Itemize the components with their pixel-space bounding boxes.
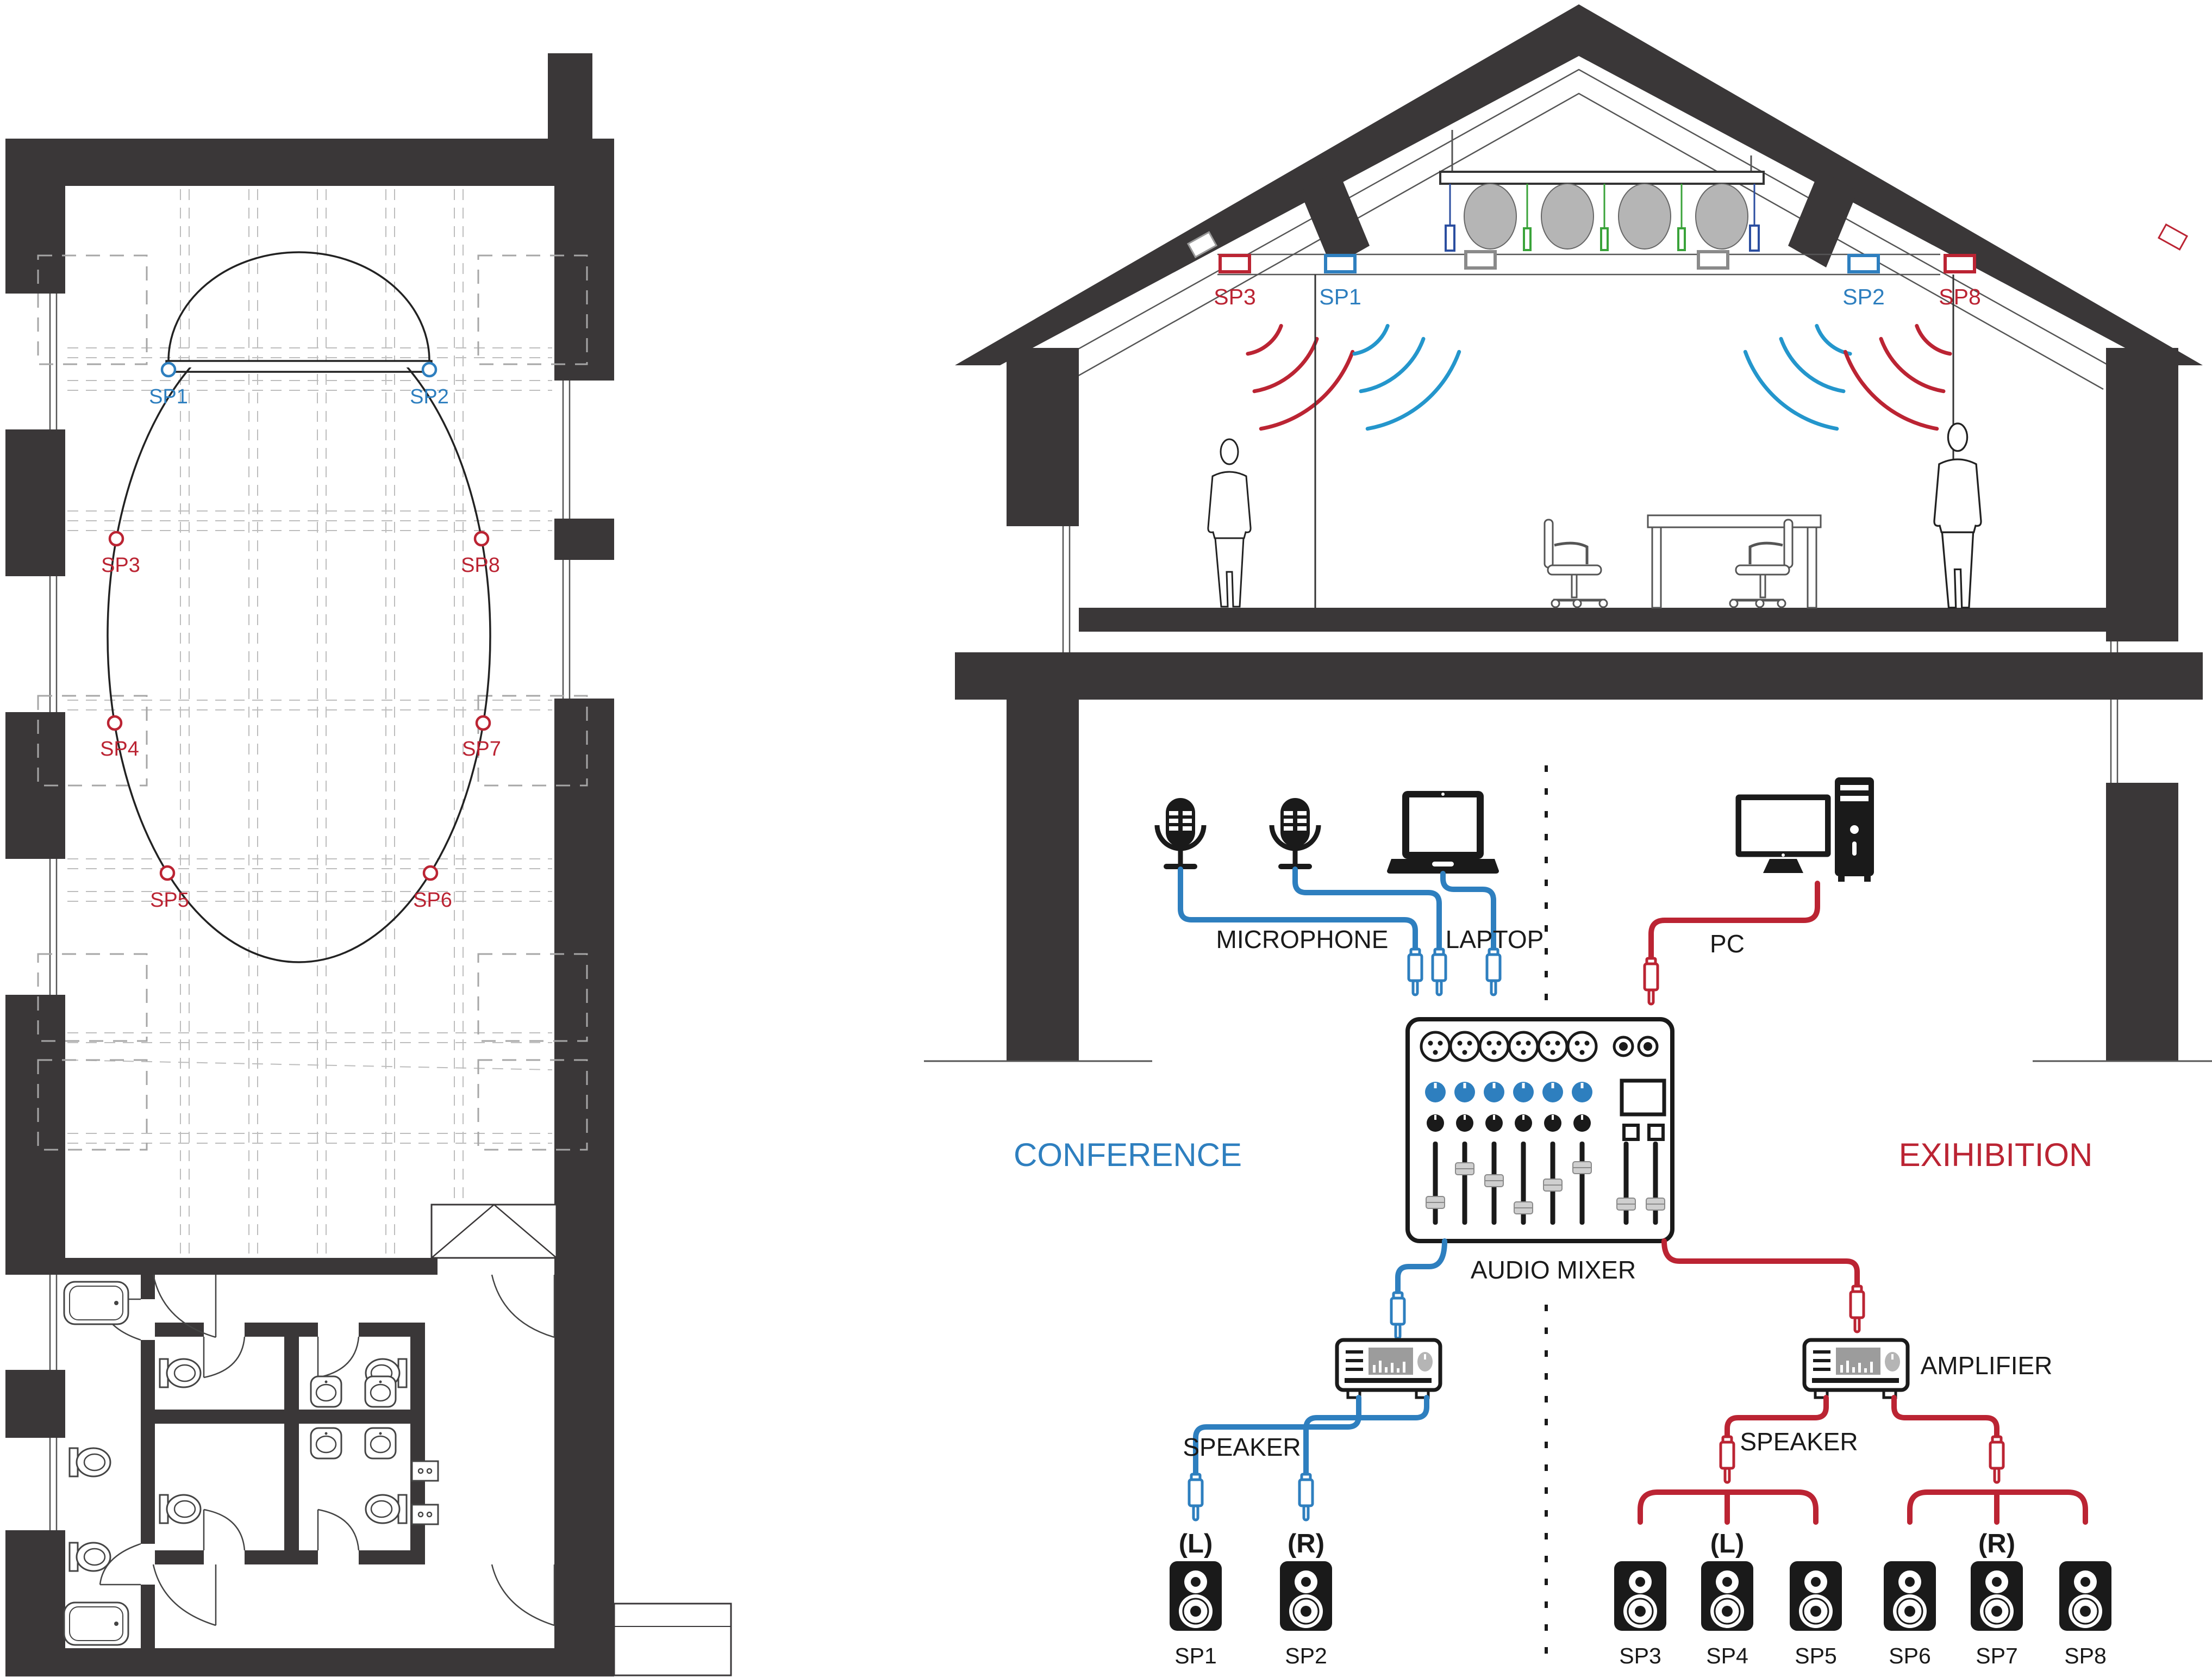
- fan-unit: [1464, 184, 1516, 249]
- fan-unit: [1541, 184, 1594, 249]
- speaker-sp6: [1884, 1561, 1936, 1631]
- cabinet-label-sp7: SP7: [1976, 1643, 2018, 1668]
- speaker-label-conference: SPEAKER: [1183, 1433, 1301, 1461]
- plan-label-sp1: SP1: [149, 385, 188, 408]
- jack-red: [1721, 1437, 1734, 1482]
- office-chair: [1730, 520, 1792, 607]
- window: [554, 560, 614, 699]
- speaker-sp1: [1170, 1561, 1222, 1631]
- window: [5, 1438, 65, 1530]
- fan-unit: [1619, 184, 1671, 249]
- section-wall-left: [1007, 348, 1079, 1061]
- sp6-marker: [424, 866, 437, 880]
- speaker-sp7: [1971, 1561, 2023, 1631]
- sink: [64, 1282, 128, 1324]
- speaker-cabinets: [1170, 1561, 2111, 1631]
- plan-label-sp2: SP2: [410, 385, 449, 408]
- ceiling-fixture: [1698, 252, 1728, 268]
- cross-section: SP3 SP1 SP2 SP8: [924, 4, 2212, 1061]
- av-system-diagram: SP1 SP2 SP3 SP8 SP4 SP7 SP5 SP6: [0, 0, 2212, 1677]
- plan-speaker-markers: [108, 363, 490, 880]
- stage-arch: [168, 252, 429, 361]
- jack-blue: [1299, 1474, 1313, 1520]
- sp7-marker: [477, 716, 490, 730]
- speaker-sp5: [1790, 1561, 1842, 1631]
- sp4-marker: [108, 716, 121, 730]
- microphone-icon: [1272, 798, 1319, 869]
- sp3-marker: [110, 532, 123, 545]
- window: [554, 381, 614, 519]
- jack-blue: [1189, 1474, 1202, 1520]
- section-window-left: [1007, 526, 1079, 668]
- channel-conf-r: (R): [1288, 1529, 1324, 1558]
- person-right: [1934, 423, 1981, 608]
- channel-exh-r: (R): [1978, 1529, 2015, 1558]
- hvac-rail: [1440, 172, 1764, 184]
- cabinet-label-sp8: SP8: [2064, 1643, 2107, 1668]
- floor-slab: [1079, 608, 2106, 632]
- section-sp1-speaker: [1326, 255, 1355, 272]
- slope-fixture-right: [2159, 225, 2187, 250]
- plan-label-sp3: SP3: [101, 554, 140, 577]
- office-chair: [1545, 520, 1607, 607]
- speaker-sp3: [1614, 1561, 1666, 1631]
- plan-label-sp5: SP5: [150, 889, 189, 912]
- jack-blue: [1391, 1293, 1404, 1338]
- section-sp2-speaker: [1849, 255, 1878, 272]
- amplifier-exhibition: [1804, 1340, 1908, 1398]
- sink-bowl: [365, 1428, 396, 1458]
- cabinet-label-sp3: SP3: [1619, 1643, 1661, 1668]
- vestibule: [432, 1205, 557, 1258]
- plan-label-sp4: SP4: [100, 738, 139, 760]
- jack-red: [1990, 1437, 2003, 1482]
- microphone-label: MICROPHONE: [1216, 925, 1389, 953]
- person-left: [1208, 439, 1251, 607]
- section-label-sp3: SP3: [1214, 284, 1256, 309]
- plan-speaker-labels: SP1 SP2 SP3 SP8 SP4 SP7 SP5 SP6: [100, 385, 501, 912]
- wall-right: [554, 139, 614, 1653]
- cabinet-label-sp2: SP2: [1285, 1643, 1327, 1668]
- diagram-canvas: SP1 SP2 SP3 SP8 SP4 SP7 SP5 SP6: [0, 0, 2212, 1677]
- plan-label-sp6: SP6: [413, 889, 452, 912]
- mixer-display: [1622, 1081, 1664, 1114]
- speaker-sp4: [1701, 1561, 1753, 1631]
- wiring-diagram: MICROPHONE LAPTOP PC CONFERENCE EXIHIBIT…: [1014, 765, 2111, 1668]
- jack-blue: [1409, 949, 1422, 995]
- sink-bowl: [365, 1376, 396, 1407]
- toilet: [70, 1448, 110, 1476]
- hand-dryer: [412, 1505, 438, 1524]
- mixer-out-blue: [1398, 1241, 1445, 1293]
- plan-label-sp7: SP7: [462, 738, 501, 760]
- amplifier-label: AMPLIFIER: [1921, 1351, 2053, 1380]
- cabinet-label-sp4: SP4: [1706, 1643, 1748, 1668]
- sink: [64, 1603, 128, 1645]
- speaker-label-exhibition: SPEAKER: [1740, 1427, 1858, 1456]
- speaker-sp8: [2059, 1561, 2111, 1631]
- pc-icon: [1734, 777, 1874, 882]
- toilet: [160, 1495, 201, 1523]
- window: [5, 294, 65, 429]
- sp8-marker: [475, 532, 488, 545]
- ceiling-fixture: [1466, 252, 1495, 268]
- hand-dryer: [412, 1461, 438, 1481]
- sound-wave-blue: [1745, 326, 1850, 428]
- plan-label-sp8: SP8: [461, 554, 500, 577]
- wall-top: [5, 139, 614, 186]
- table: [1648, 515, 1821, 608]
- section-label-sp8: SP8: [1939, 284, 1981, 309]
- speaker-cabinet-labels: SP1 SP2 SP3 SP4 SP5 SP6 SP7 SP8: [1174, 1643, 2107, 1668]
- speaker-sp2: [1280, 1561, 1332, 1631]
- channel-exh-l: (L): [1710, 1529, 1745, 1558]
- sound-wave-red: [1248, 326, 1353, 428]
- bathroom-block: [64, 1205, 557, 1648]
- sink-bowl: [311, 1376, 341, 1407]
- wall-bottom: [5, 1648, 614, 1676]
- toilet: [366, 1495, 407, 1523]
- jack-blue: [1487, 949, 1500, 995]
- sink-bowl: [311, 1428, 341, 1458]
- window: [5, 1275, 65, 1370]
- conference-zone-label: CONFERENCE: [1014, 1137, 1242, 1173]
- sp5-marker: [161, 866, 174, 880]
- mixer-out-red: [1664, 1241, 1857, 1286]
- toilet: [160, 1359, 201, 1387]
- audio-mixer-label: AUDIO MIXER: [1471, 1256, 1636, 1284]
- jack-blue: [1433, 949, 1446, 995]
- section-label-sp1: SP1: [1319, 284, 1361, 309]
- jack-red: [1645, 958, 1658, 1004]
- channel-conf-l: (L): [1179, 1529, 1213, 1558]
- toilet: [70, 1543, 110, 1571]
- floor-plan: SP1 SP2 SP3 SP8 SP4 SP7 SP5 SP6: [5, 53, 731, 1676]
- porch: [614, 1604, 731, 1675]
- section-sp8-speaker: [1945, 255, 1974, 272]
- sp2-marker: [423, 363, 436, 376]
- floor-beam: [955, 652, 2203, 700]
- amplifier-conference: [1337, 1340, 1440, 1398]
- window: [5, 576, 65, 712]
- cabinet-label-sp5: SP5: [1795, 1643, 1837, 1668]
- floor-plan-windows: [5, 294, 614, 1530]
- laptop-icon: [1387, 791, 1499, 874]
- wall-chimney: [548, 53, 592, 140]
- cabinet-label-sp1: SP1: [1174, 1643, 1217, 1668]
- microphone-icon: [1157, 798, 1204, 869]
- sound-wave-blue: [1354, 326, 1459, 428]
- attic-hvac-unit: [1440, 130, 1764, 251]
- sound-wave-red: [1845, 326, 1950, 428]
- laptop-label: LAPTOP: [1446, 925, 1544, 953]
- section-sp3-speaker: [1220, 255, 1249, 272]
- fan-unit: [1696, 184, 1748, 249]
- cabinet-label-sp6: SP6: [1889, 1643, 1931, 1668]
- pc-label: PC: [1710, 930, 1745, 958]
- grid-panels: [38, 255, 587, 1150]
- jack-red: [1851, 1286, 1864, 1332]
- window: [5, 859, 65, 995]
- section-label-sp2: SP2: [1842, 284, 1885, 309]
- sp1-marker: [162, 363, 175, 376]
- exhibition-zone-label: EXIHIBITION: [1899, 1137, 2093, 1173]
- stage-front-line: [166, 361, 432, 372]
- floor-plan-walls: [5, 53, 614, 1676]
- exhibition-distribution-brackets: [1640, 1492, 2085, 1522]
- audio-mixer: [1408, 1019, 1672, 1241]
